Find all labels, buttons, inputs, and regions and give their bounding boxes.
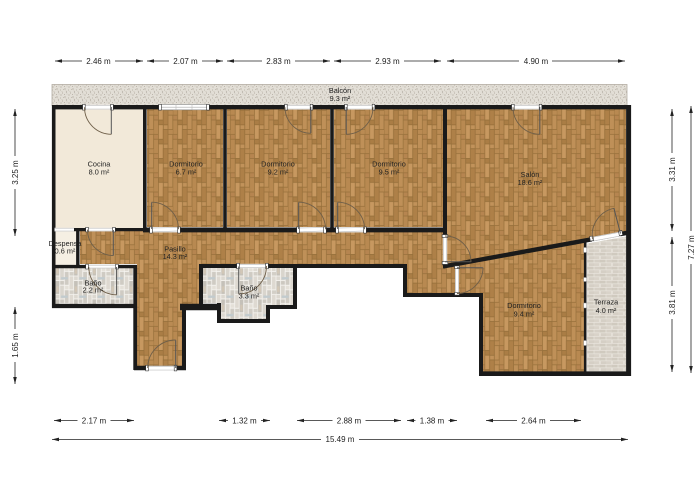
svg-text:2.2 m²: 2.2 m²	[83, 286, 104, 295]
svg-text:2.64 m: 2.64 m	[521, 416, 546, 425]
svg-text:2.93 m: 2.93 m	[375, 57, 400, 66]
svg-text:3.3 m²: 3.3 m²	[239, 292, 260, 301]
svg-text:18.6 m²: 18.6 m²	[518, 178, 543, 187]
svg-text:9.3 m²: 9.3 m²	[330, 94, 351, 103]
svg-text:4.90 m: 4.90 m	[524, 57, 549, 66]
svg-text:9.4 m²: 9.4 m²	[514, 310, 535, 319]
svg-text:9.5 m²: 9.5 m²	[379, 168, 400, 177]
svg-text:3.31 m: 3.31 m	[668, 157, 677, 182]
svg-text:15.49 m: 15.49 m	[326, 435, 355, 444]
svg-text:2.83 m: 2.83 m	[266, 57, 291, 66]
svg-text:1.38 m: 1.38 m	[420, 416, 445, 425]
svg-text:2.46 m: 2.46 m	[86, 57, 111, 66]
svg-text:7.27 m: 7.27 m	[687, 235, 696, 260]
svg-text:2.88 m: 2.88 m	[337, 416, 362, 425]
svg-text:14.3 m²: 14.3 m²	[163, 252, 188, 261]
svg-text:1.65 m: 1.65 m	[11, 333, 20, 358]
svg-text:8.0 m²: 8.0 m²	[89, 168, 110, 177]
svg-text:1.32 m: 1.32 m	[232, 416, 257, 425]
svg-text:4.0 m²: 4.0 m²	[596, 306, 617, 315]
svg-text:0.6 m²: 0.6 m²	[55, 247, 76, 256]
svg-text:3.25 m: 3.25 m	[11, 160, 20, 185]
svg-text:2.17 m: 2.17 m	[82, 416, 107, 425]
svg-text:3.81 m: 3.81 m	[668, 290, 677, 315]
svg-text:6.7 m²: 6.7 m²	[176, 168, 197, 177]
svg-text:9.2 m²: 9.2 m²	[268, 168, 289, 177]
svg-text:2.07 m: 2.07 m	[173, 57, 198, 66]
